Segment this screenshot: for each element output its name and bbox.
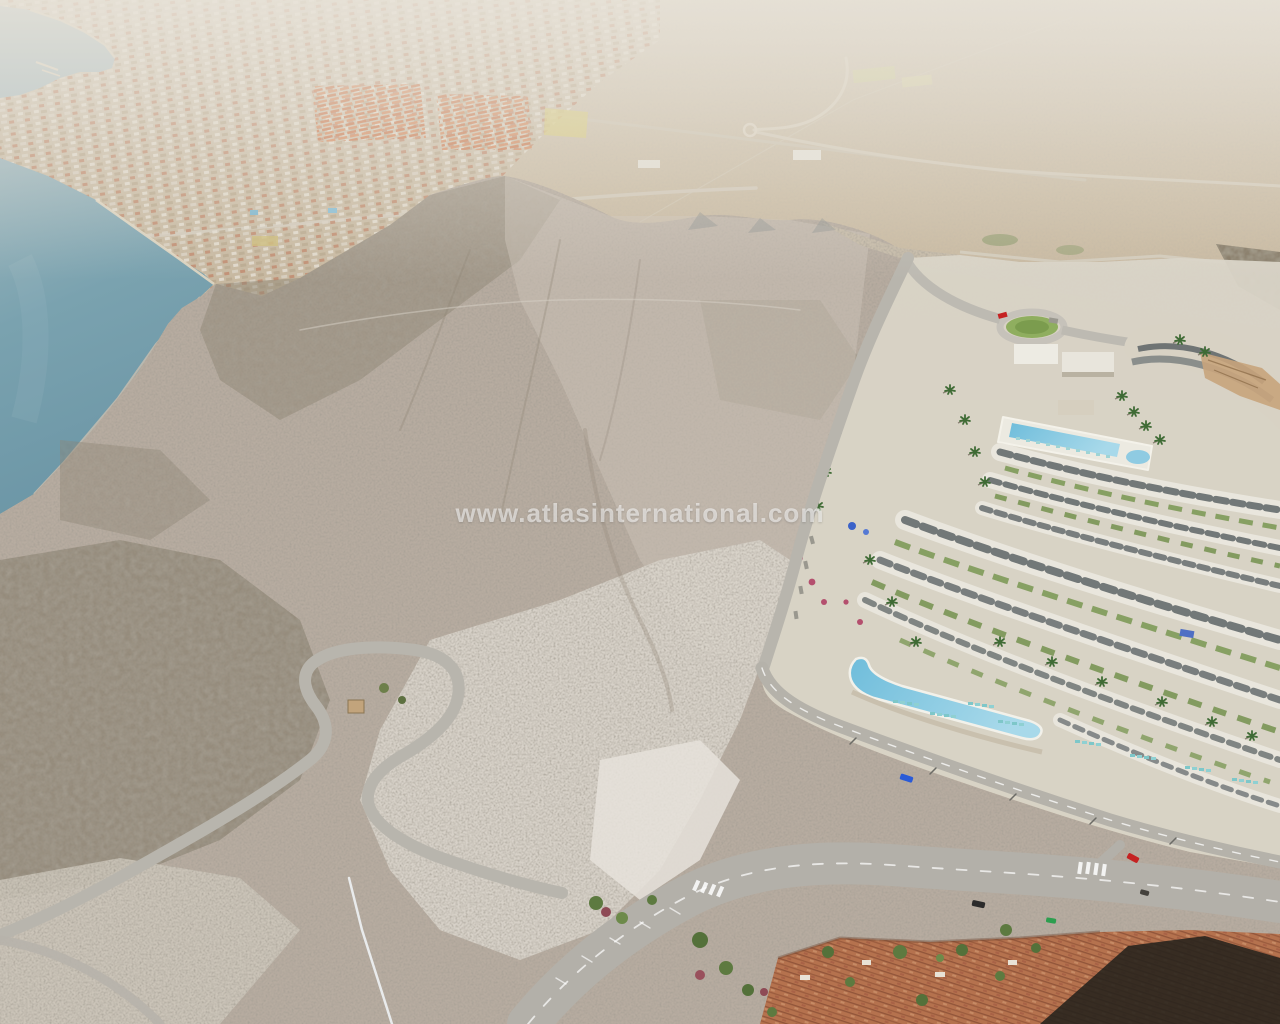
- red-tree: [695, 970, 705, 980]
- red-tree: [601, 907, 611, 917]
- terracotta-houses: [760, 930, 1280, 1024]
- aerial-render-canvas: www.atlasinternational.com: [0, 0, 1280, 1024]
- kids-pool: [1126, 450, 1150, 464]
- red-tree: [760, 988, 768, 996]
- aerial-render: www.atlasinternational.com: [0, 0, 1280, 1024]
- watermark-text: www.atlasinternational.com: [455, 498, 825, 528]
- atmospheric-haze: [0, 0, 1280, 280]
- hairpin-building: [348, 700, 364, 713]
- pool-pavilion: [1058, 400, 1094, 415]
